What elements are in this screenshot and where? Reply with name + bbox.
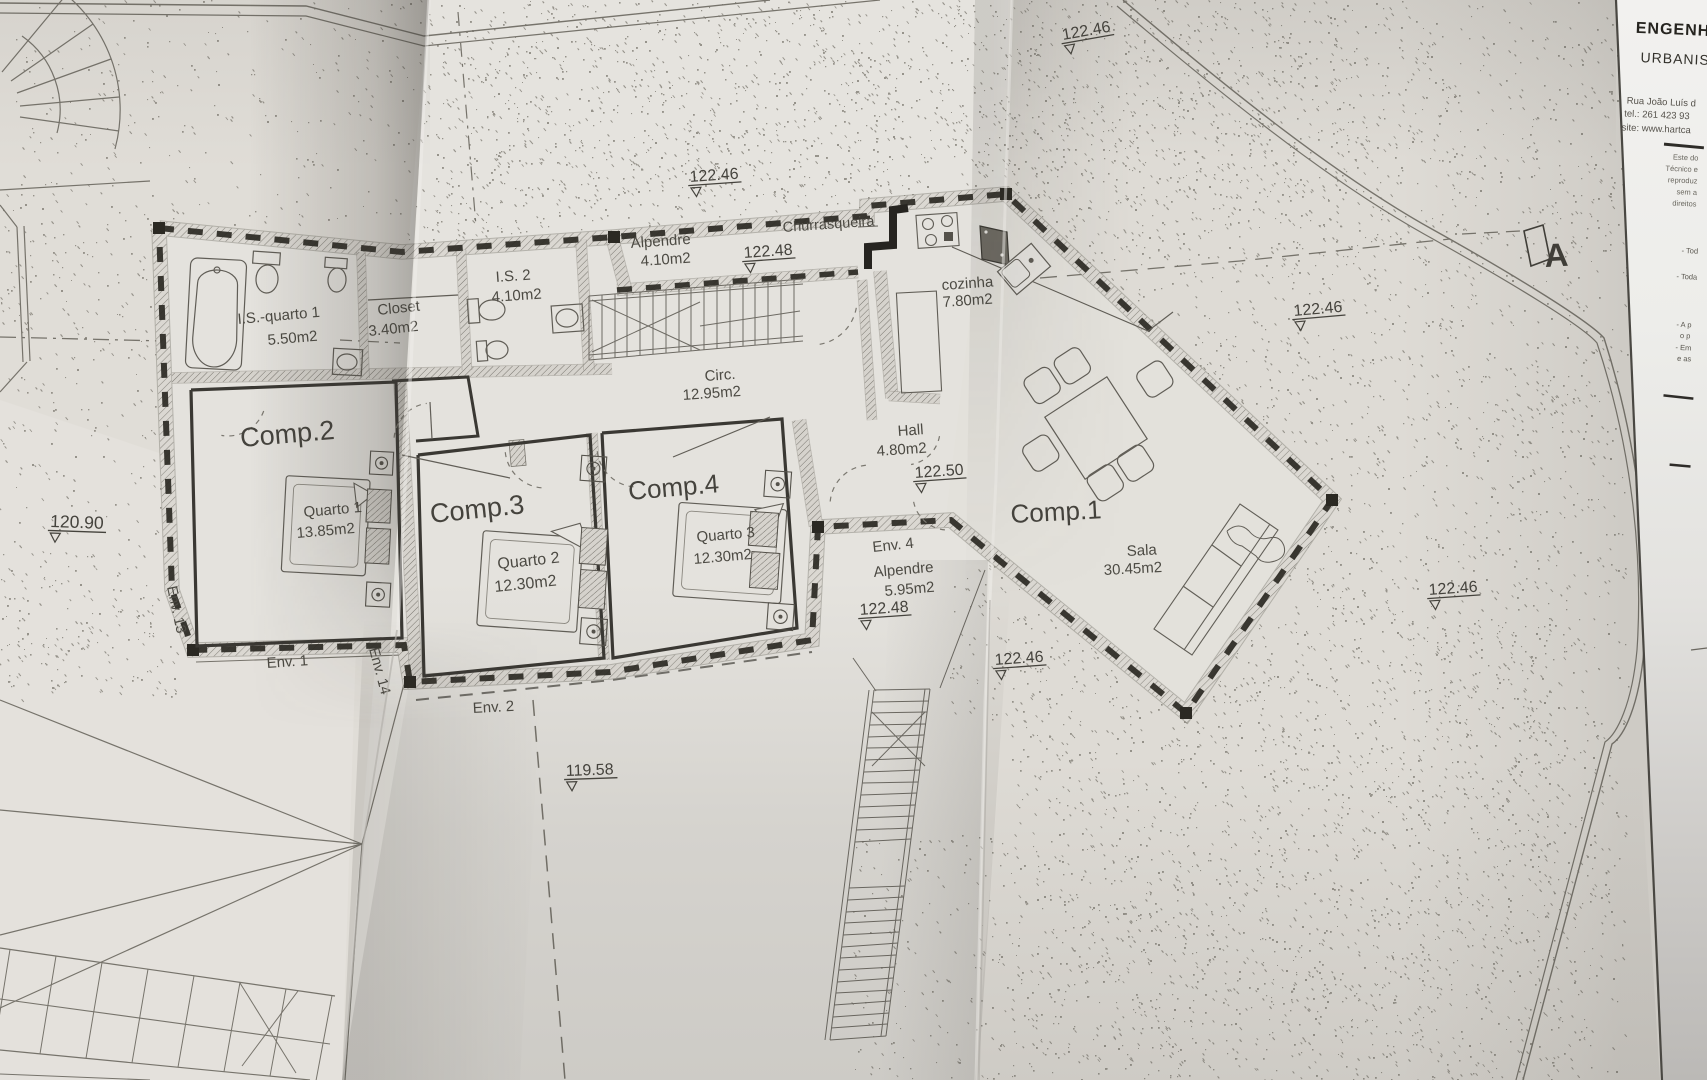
svg-text:Técnico e: Técnico e [1665,164,1698,174]
svg-text:sem a: sem a [1676,187,1698,197]
svg-text:- A p: - A p [1676,320,1691,330]
svg-text:- Toda: - Toda [1676,272,1698,282]
svg-text:o p: o p [1680,331,1691,340]
svg-text:- Em: - Em [1675,343,1691,353]
svg-text:reproduz: reproduz [1668,175,1698,185]
svg-text:4.10m2: 4.10m2 [491,286,542,306]
svg-text:e as: e as [1677,354,1692,364]
svg-text:Hall: Hall [897,421,924,440]
svg-text:I.S. 2: I.S. 2 [495,267,531,286]
svg-text:Circ.: Circ. [704,366,736,385]
svg-text:Este do: Este do [1673,153,1699,163]
svg-text:4.10m2: 4.10m2 [640,250,691,270]
svg-text:4.80m2: 4.80m2 [876,440,927,460]
svg-text:120.90: 120.90 [50,511,104,533]
svg-text:- Tod: - Tod [1681,246,1698,256]
svg-text:direitos: direitos [1672,199,1697,209]
